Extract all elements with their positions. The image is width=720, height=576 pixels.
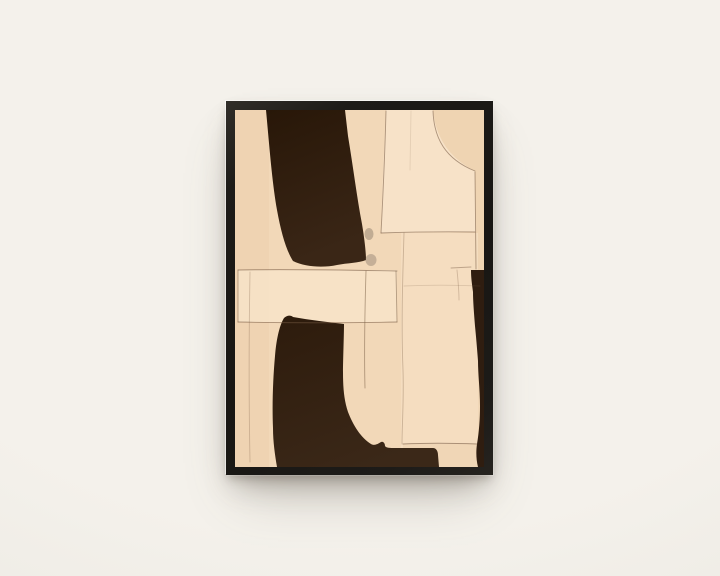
tape-smudge-bottom: [366, 254, 377, 266]
scene-wall: [0, 0, 720, 576]
abstract-artwork: [235, 110, 484, 467]
right-panel-shade: [401, 233, 478, 467]
tape-smudge-top: [365, 228, 374, 240]
artwork-paper: [235, 110, 484, 467]
poster-frame: [226, 101, 493, 475]
middle-band-shade: [238, 270, 397, 322]
